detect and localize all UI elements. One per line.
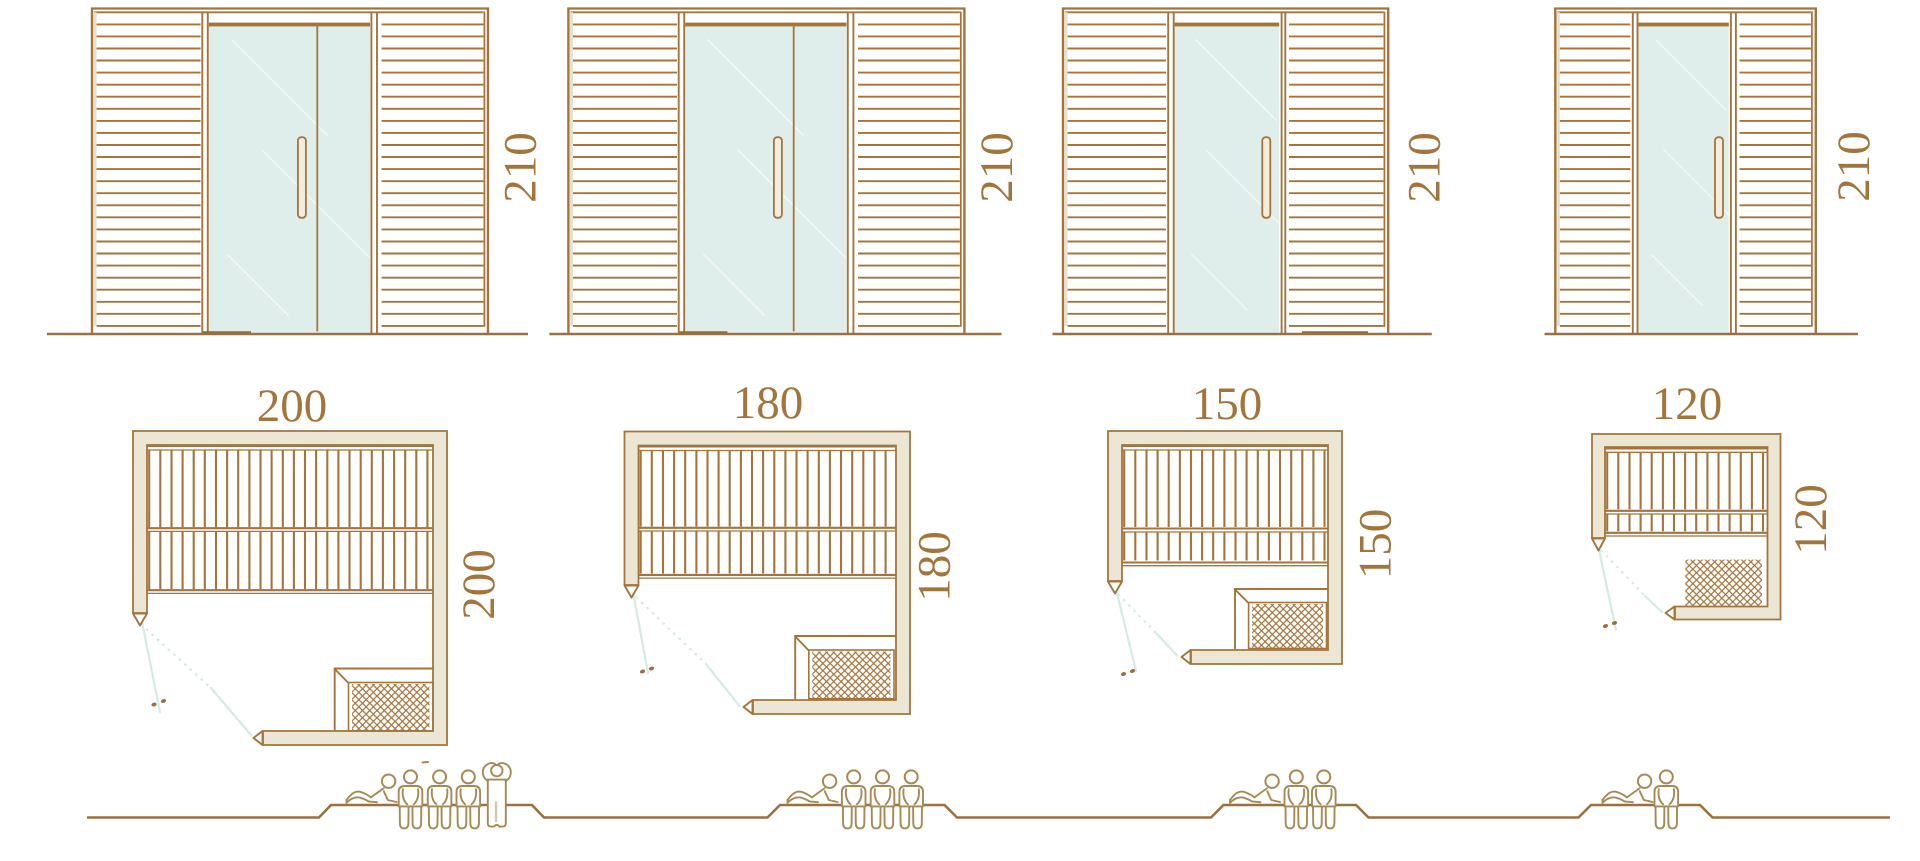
svg-text:210: 210 xyxy=(971,132,1023,203)
svg-text:210: 210 xyxy=(1828,131,1880,202)
svg-text:120: 120 xyxy=(1652,378,1723,430)
svg-text:150: 150 xyxy=(1192,378,1263,430)
svg-text:120: 120 xyxy=(1785,484,1837,555)
svg-text:210: 210 xyxy=(1399,132,1451,203)
svg-text:210: 210 xyxy=(495,132,547,203)
svg-text:150: 150 xyxy=(1350,509,1402,580)
svg-text:200: 200 xyxy=(257,380,328,432)
svg-text:180: 180 xyxy=(733,377,804,429)
svg-text:180: 180 xyxy=(909,531,961,602)
svg-text:200: 200 xyxy=(453,549,505,620)
